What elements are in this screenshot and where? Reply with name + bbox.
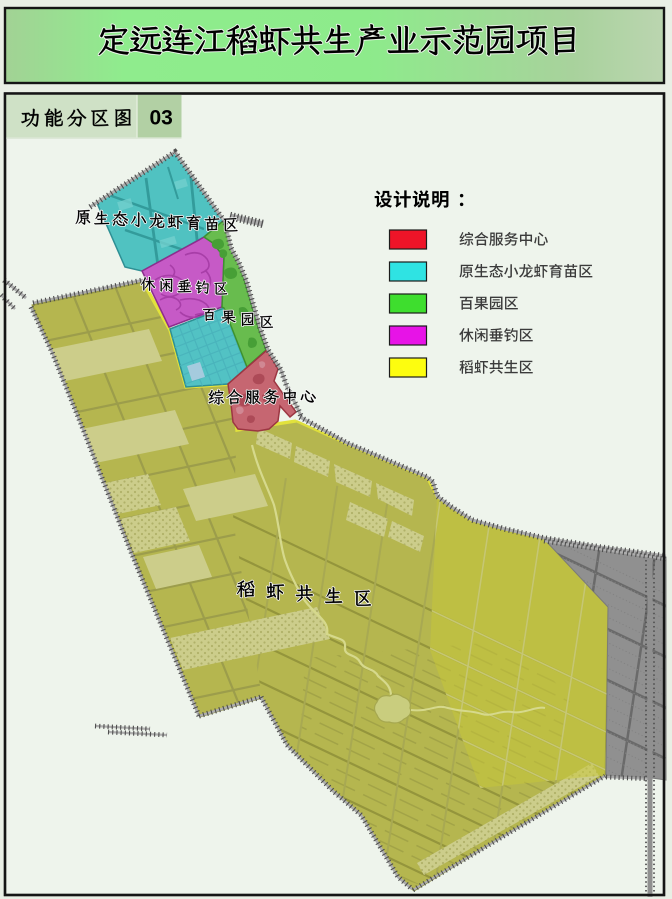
svg-text:03: 03 [150, 106, 173, 129]
